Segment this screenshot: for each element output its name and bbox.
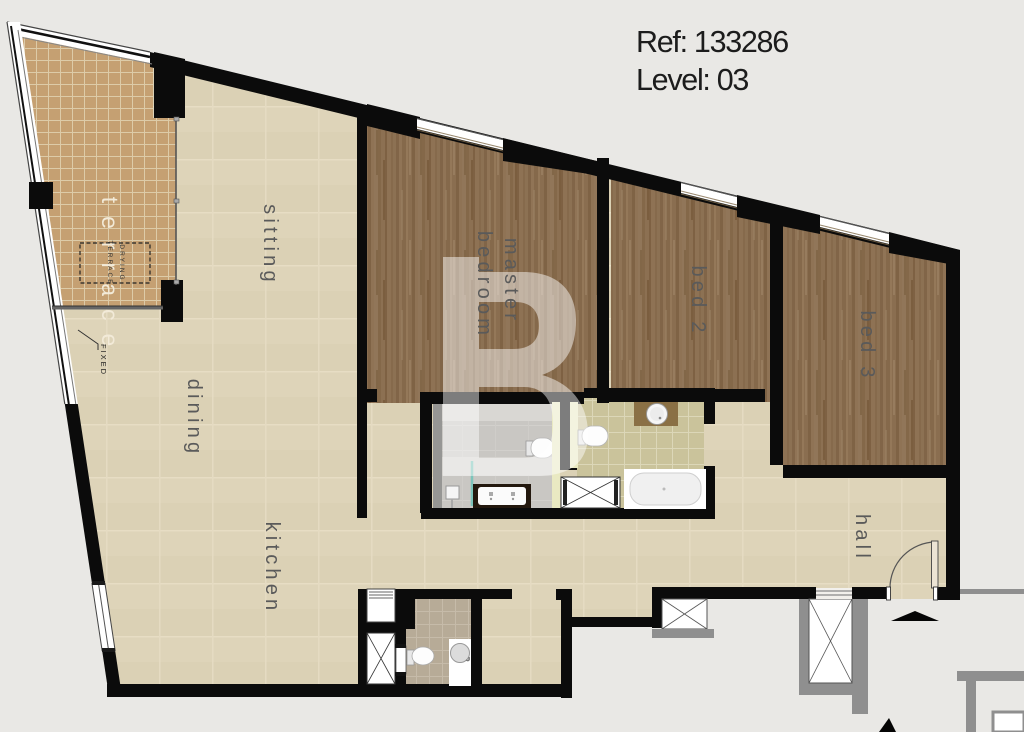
svg-text:bed 2: bed 2 [687,265,709,336]
svg-text:sitting: sitting [259,204,281,286]
svg-text:kitchen: kitchen [261,522,283,615]
svg-text:Level: 03: Level: 03 [636,63,748,97]
svg-text:bedroom: bedroom [473,231,495,339]
svg-text:bed 3: bed 3 [856,310,878,381]
svg-text:terrace: terrace [97,197,123,360]
svg-text:master: master [500,238,522,324]
svg-text:Ref: 133286: Ref: 133286 [636,25,788,59]
svg-text:dining: dining [183,379,205,458]
svg-text:hall: hall [851,514,873,562]
